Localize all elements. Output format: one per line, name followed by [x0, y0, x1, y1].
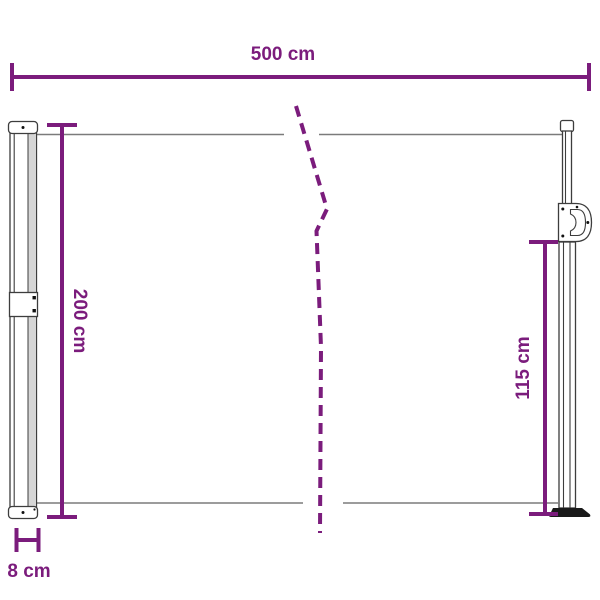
bottom-cap-screw [22, 511, 25, 514]
handle-screw-right [586, 221, 589, 224]
width-dimension: 500 cm [12, 44, 589, 91]
diagram-svg: 500 cm 200 cm 115 cm 8 cm [0, 0, 600, 600]
pole-height-dimension: 115 cm [513, 242, 558, 514]
fabric-break-line [296, 106, 327, 533]
bottom-cap-screw-2 [33, 508, 35, 510]
bracket-screw-bottom [33, 309, 36, 312]
depth-dimension: 8 cm [7, 528, 50, 582]
product-dimension-diagram: 500 cm 200 cm 115 cm 8 cm [0, 0, 600, 600]
handle-screw-bottom-left [561, 235, 564, 238]
handle-screw-top-left [561, 208, 564, 211]
height-dimension: 200 cm [47, 125, 90, 517]
pole-lower-section [559, 242, 576, 508]
cassette-shade-band [28, 133, 37, 508]
top-cap-screw [22, 126, 25, 129]
width-dim-label: 500 cm [251, 44, 315, 65]
pole-height-dim-label: 115 cm [513, 336, 534, 399]
cassette-pole [9, 122, 38, 519]
support-pole [549, 121, 591, 518]
depth-dim-label: 8 cm [7, 561, 50, 582]
pole-top-cap [561, 121, 574, 132]
height-dim-label: 200 cm [69, 289, 90, 353]
bracket-screw-top [33, 296, 36, 299]
handle-screw-top [576, 206, 579, 209]
pole-upper-section [563, 131, 572, 204]
